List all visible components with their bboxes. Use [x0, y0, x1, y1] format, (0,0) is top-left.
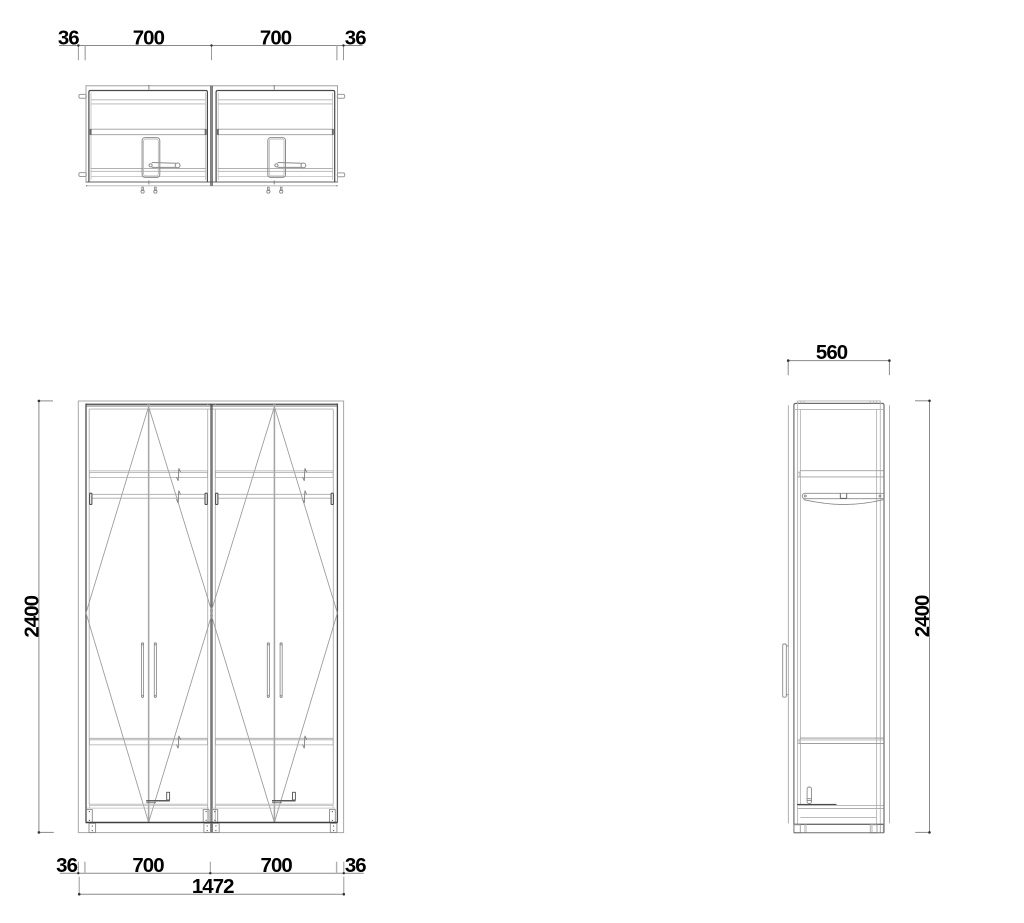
svg-text:36: 36 — [58, 27, 79, 49]
svg-text:700: 700 — [260, 27, 292, 49]
svg-text:2400: 2400 — [21, 595, 43, 637]
svg-text:700: 700 — [132, 855, 164, 877]
svg-text:2400: 2400 — [912, 595, 934, 637]
svg-text:36: 36 — [345, 27, 366, 49]
svg-text:700: 700 — [261, 855, 293, 877]
svg-text:700: 700 — [133, 27, 165, 49]
svg-text:560: 560 — [816, 342, 848, 364]
svg-text:36: 36 — [56, 855, 77, 877]
svg-text:1472: 1472 — [192, 876, 234, 898]
svg-text:36: 36 — [345, 855, 366, 877]
